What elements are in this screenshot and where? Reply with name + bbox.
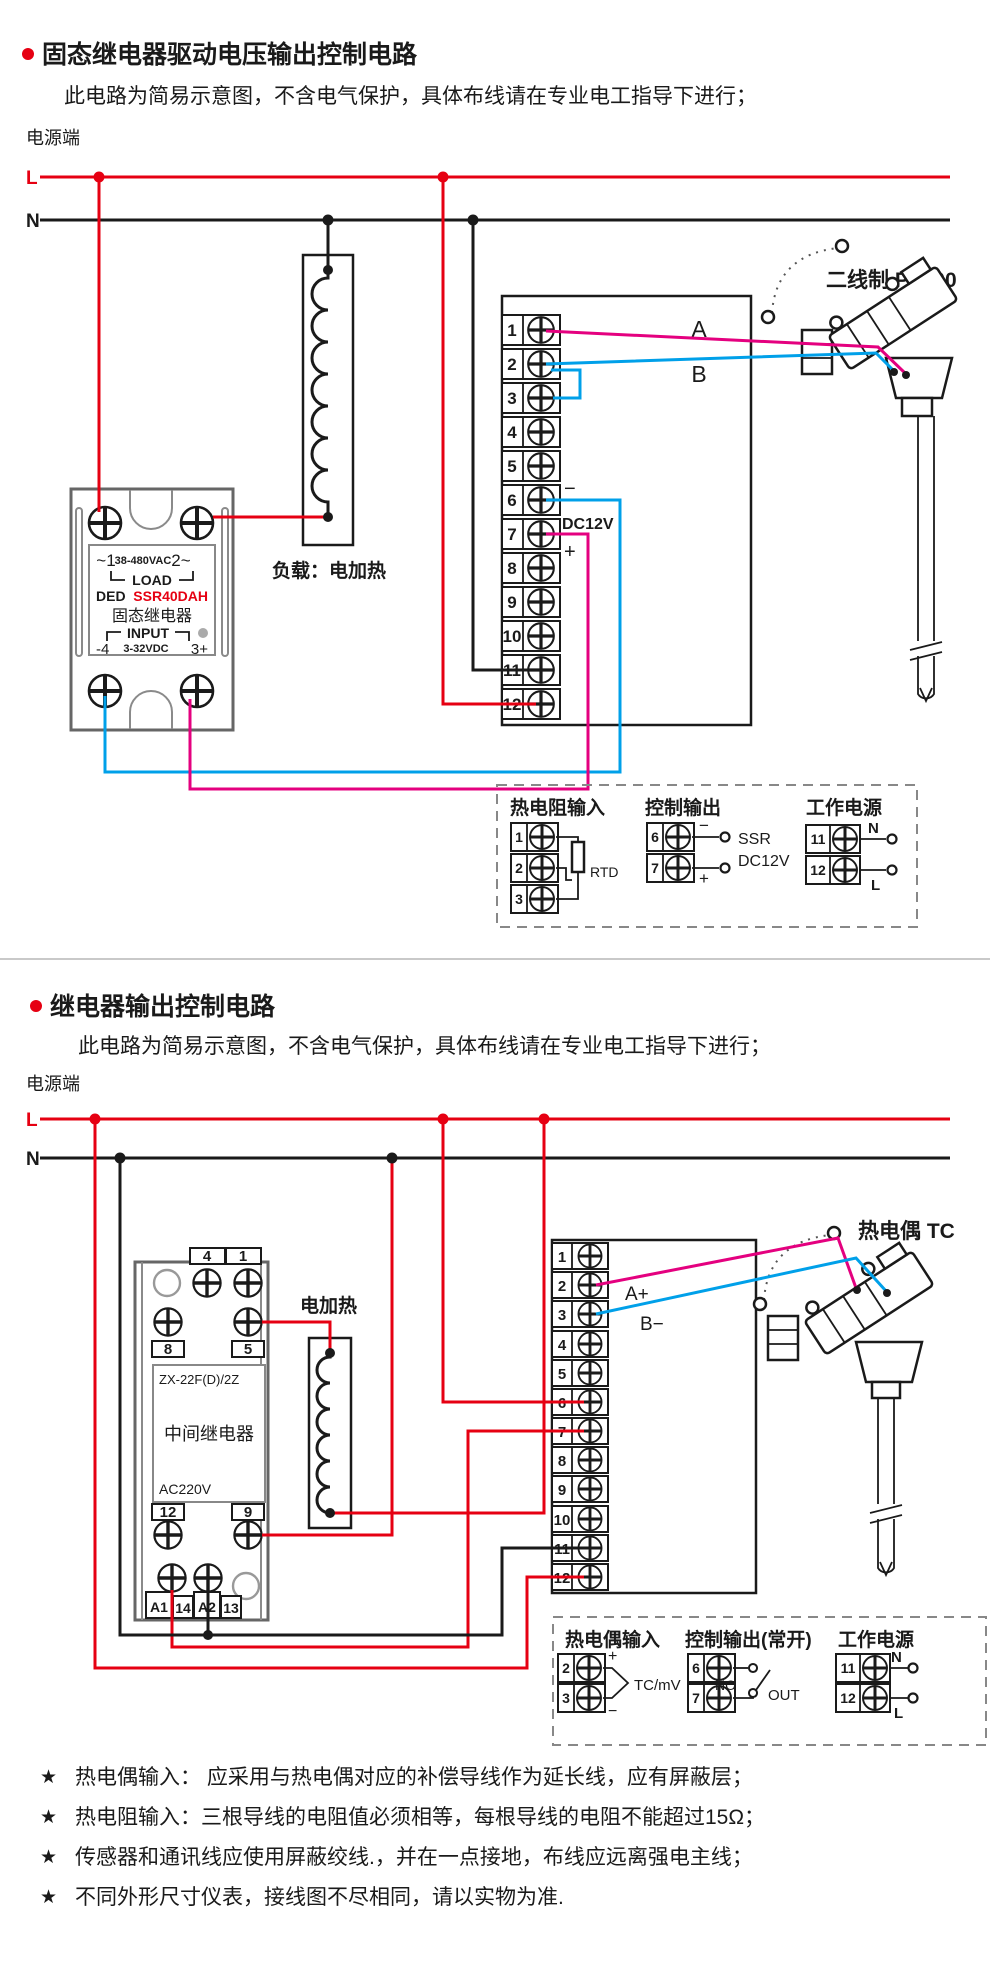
pt100-collar [902,398,932,416]
tc-collar [872,1382,900,1398]
heater-label: 电加热 [300,1294,357,1317]
pwr-n-label: N [891,1649,902,1666]
note-star-icon: ★ [40,1767,57,1788]
relay-cell-label: 13 [223,1600,239,1616]
diagram-canvas: 固态继电器驱动电压输出控制电路 此电路为简易示意图，不含电气保护，具体布线请在专… [0,0,990,1960]
note-star-icon: ★ [40,1887,57,1908]
terminal-number: 9 [507,593,516,612]
wire-b-minus-label: B− [640,1314,664,1335]
terminal-row-1: 1 [552,1243,608,1269]
output-pin-icon [721,864,730,873]
junction-dot [325,1508,335,1518]
terminal-screw-icon [578,1507,601,1530]
section2-bullet-icon [30,1000,42,1012]
relay-screw-icon [154,1308,181,1335]
legend-terminal-11: 11 [806,825,860,853]
terminal-number: 5 [558,1366,566,1383]
terminal-screw-icon [578,1244,601,1267]
pt100-arc-screw-icon [762,311,774,323]
terminal-number: 10 [554,1512,571,1529]
ssr-input-label: INPUT [127,625,169,641]
terminal-number: 3 [515,891,523,907]
dc-plus-label: + [564,541,576,563]
terminal-row-10: 10 [552,1506,608,1532]
instrument2: 1 2 3 4 5 6 7 8 9 10 11 12 A+ B− [552,1240,756,1593]
terminal-number: 2 [507,355,516,374]
terminal-screw-icon [833,827,857,851]
switch-pin-icon [749,1664,757,1672]
sensor-pin-dot [883,1289,891,1297]
terminal-screw-icon [666,825,690,849]
power-pin-icon [888,866,897,875]
out-minus-label: − [699,816,709,835]
terminal-number: 3 [562,1690,570,1706]
terminal-screw-icon [578,1448,601,1471]
wire-a-plus-label: A+ [625,1284,649,1305]
line-n-label: N [26,1149,40,1170]
terminal-screw-icon [666,856,690,880]
power-end-label: 电源端 [26,1074,80,1094]
switch-pin-icon [749,1689,757,1697]
junction-dot [323,215,334,226]
terminal-number: 8 [507,559,516,578]
wiring-diagram-page: 固态继电器驱动电压输出控制电路 此电路为简易示意图，不含电气保护，具体布线请在专… [0,0,990,1960]
tc-tip-v [880,1562,892,1575]
terminal-number: 4 [558,1337,567,1354]
relay-cell-label: 14 [175,1600,191,1616]
relay-screw-icon [158,1564,185,1591]
load-label: 负载：电加热 [272,559,386,582]
terminal-number: 2 [562,1660,570,1676]
legend-terminal-6: 6 [647,823,694,851]
relay-screw-icon [194,1564,221,1591]
terminal-screw-icon [833,858,857,882]
terminal-screw-icon [863,1686,887,1710]
legend-terminal-11: 11 [836,1654,890,1682]
power-end-label: 电源端 [26,128,80,148]
ssr-ac2-label: 2~ [171,551,190,570]
terminal-number: 2 [515,860,523,876]
pwr-n-label: N [868,820,879,837]
work-power-title: 工作电源 [806,796,882,819]
ssr-load-label: LOAD [132,572,172,588]
terminal-row-4: 4 [502,417,560,447]
terminal-screw-icon [528,419,554,445]
terminal-screw-icon [528,555,554,581]
line-l-label: L [26,168,38,189]
terminal-screw-icon [528,385,554,411]
section2-subtitle: 此电路为简易示意图，不含电气保护，具体布线请在专业电工指导下进行； [78,1035,771,1058]
control-output-no-title: 控制输出(常开) [685,1628,812,1651]
terminal-number: 5 [507,457,516,476]
relay-name-label: 中间继电器 [164,1424,254,1444]
terminal-number: 6 [692,1660,700,1676]
ssr-terminal3-screw-icon [181,675,213,707]
wire-tc-a [596,1238,856,1288]
terminal-screw-icon [530,887,554,911]
legend-box-2: 热电偶输入 2 3 + − TC/mV 控制输出(常开) 6 7 NO OUT … [553,1617,986,1745]
note-line-1: 热电偶输入： 应采用与热电偶对应的补偿导线作为延长线，应有屏蔽层； [75,1766,753,1789]
tc-arc-screw-icon [754,1298,766,1310]
tc-flange [856,1342,922,1382]
tc-label: 热电偶 TC [858,1219,955,1243]
terminal-number: 6 [507,491,516,510]
ssr-brand-label: DED [96,588,126,604]
legend-terminal-12: 12 [836,1684,890,1712]
terminal-row-9: 9 [552,1476,608,1502]
terminal-number: 6 [651,829,659,845]
terminal-number: 1 [515,829,523,845]
junction-dot [115,1153,126,1164]
terminal-number: 12 [810,862,826,878]
terminal-row-3: 3 [502,383,560,413]
junction-dot [323,265,333,275]
load-heater [303,255,353,545]
terminal-number: 1 [558,1249,566,1266]
power-pin-icon [909,1694,918,1703]
terminal-row-5: 5 [552,1360,608,1386]
terminal-number: 7 [651,860,659,876]
terminal-screw-icon [578,1332,601,1355]
terminal-number: 3 [558,1307,566,1324]
pt100-arc-screw-icon [836,240,848,252]
work-power-title: 工作电源 [838,1628,914,1651]
section1-bullet-icon [22,48,34,60]
legend-terminal-3: 3 [558,1684,605,1712]
sensor-pin-dot [902,371,910,379]
tc-bracket [603,1668,628,1698]
pwr-l-label: L [871,877,880,894]
note-star-icon: ★ [40,1807,57,1828]
legend-terminal-12: 12 [806,856,860,884]
relay-screw-icon [234,1308,261,1335]
junction-dot [438,1114,449,1125]
no-label: NO [715,1677,736,1693]
dc12v-label: DC12V [562,516,614,533]
relay-volt-label: AC220V [159,1481,212,1497]
line-n-label: N [26,211,40,232]
terminal-number: 3 [507,389,516,408]
out-label: OUT [768,1687,800,1704]
terminal-row-8: 8 [552,1447,608,1473]
relay-model-label: ZX-22F(D)/2Z [159,1372,239,1387]
section1-subtitle: 此电路为简易示意图，不含电气保护，具体布线请在专业电工指导下进行； [64,85,757,108]
legend-terminal-1: 1 [511,823,558,851]
note-line-4: 不同外形尺寸仪表，接线图不尽相同，请以实物为准. [75,1886,564,1909]
legend-terminal-2: 2 [511,854,558,882]
pt100-sensor: 二线制 PT100 [762,240,958,701]
out-plus-label: + [699,869,709,888]
note-star-icon: ★ [40,1847,57,1868]
ssr-dc4-label: -4 [96,641,109,658]
terminal-row-9: 9 [502,587,560,617]
junction-dot [94,172,105,183]
terminal-screw-icon [528,589,554,615]
relay-component: 4 1 8 5 ZX-22F(D)/2Z 中间继电器 AC220V 12 9 A… [135,1248,268,1620]
legend-terminal-7: 7 [647,854,694,882]
legend-box-1: 热电阻输入 1 2 3 RTD 控制输出 6 7 − + SSR DC12V 工… [497,785,917,927]
terminal-row-8: 8 [502,553,560,583]
control-output-title: 控制输出 [645,796,721,819]
section2-title: 继电器输出控制电路 [50,992,276,1021]
relay-cell-label: 9 [244,1504,252,1521]
terminal-number: 7 [507,525,516,544]
power-pin-icon [909,1664,918,1673]
wire-l-to-heater [330,1119,544,1513]
ssr-led-icon [198,628,208,638]
terminal-number: 11 [811,831,826,847]
wire-b-label: B [691,361,706,387]
relay-cell-label: 4 [203,1248,212,1265]
terminal-row-10: 10 [502,621,560,651]
ssr-terminal2-screw-icon [181,507,213,539]
terminal-number: 10 [503,627,522,646]
notes: ★ 热电偶输入： 应采用与热电偶对应的补偿导线作为延长线，应有屏蔽层； ★ 热电… [40,1766,765,1909]
terminal-number: 1 [507,321,516,340]
legend-terminal-2: 2 [558,1654,605,1682]
ssr-terminal1-screw-icon [89,507,121,539]
power-pin-icon [888,835,897,844]
section1-title: 固态继电器驱动电压输出控制电路 [42,40,418,69]
terminal-screw-icon [528,623,554,649]
terminal-number: 11 [841,1660,856,1676]
relay-cell-label: 1 [239,1248,247,1265]
tc-head [796,1239,933,1355]
junction-dot [438,172,449,183]
relay-cell-label: 5 [244,1341,252,1358]
terminal-screw-icon [863,1656,887,1680]
relay-cell-label: 8 [164,1341,172,1358]
legend-terminal-3: 3 [511,885,558,913]
note-line-2: 热电阻输入：三根导线的电阻值必须相等，每根导线的电阻不能超过15Ω； [75,1806,765,1829]
junction-dot [325,1348,335,1358]
tc-minus-label: − [608,1703,617,1720]
rtd-wiring [556,872,578,899]
note-line-3: 传感器和通讯线应使用屏蔽绞线.，并在一点接地，布线应远离强电主线； [75,1846,753,1869]
terminal-screw-icon [530,856,554,880]
terminal-screw-icon [578,1361,601,1384]
terminal-screw-icon [577,1656,601,1680]
relay-screw-icon [234,1269,261,1296]
terminal-number: 4 [507,423,517,442]
junction-dot [90,1114,101,1125]
ssr-dc3-label: 3+ [191,641,208,658]
relay-plain-hole-icon [154,1270,180,1296]
junction-dot [323,512,333,522]
terminal-screw-icon [577,1686,601,1710]
terminal-row-4: 4 [552,1331,608,1357]
terminal-screw-icon [578,1477,601,1500]
relay-screw-icon [193,1269,220,1296]
out-ssr-label: SSR [738,831,771,848]
relay-screw-icon [154,1521,181,1548]
rtd-input-title: 热电阻输入 [510,796,605,819]
junction-dot [468,215,479,226]
terminal-screw-icon [530,825,554,849]
ssr-model-label: SSR40DAH [133,588,208,604]
sensor-pin-dot [890,368,898,376]
rtd-resistor-icon [572,842,584,872]
pwr-l-label: L [894,1705,903,1722]
terminal-number: 12 [840,1690,856,1706]
relay-cell-label: 12 [160,1504,177,1521]
ssr-vdc-label: 3-32VDC [123,643,168,655]
junction-dot [387,1153,398,1164]
dc-minus-label: − [564,478,576,500]
ssr-component: ~1 38-480VAC 2~ LOAD DED SSR40DAH 固态继电器 … [71,489,233,730]
terminal-number: 2 [558,1278,566,1295]
ssr-name-label: 固态继电器 [112,607,192,625]
section1: 固态继电器驱动电压输出控制电路 此电路为简易示意图，不含电气保护，具体布线请在专… [22,40,958,927]
tcmv-label: TC/mV [634,1677,681,1694]
terminal-screw-icon [528,453,554,479]
out-dc12v-label: DC12V [738,853,790,870]
terminal-number: 7 [692,1690,700,1706]
tc-gland [768,1316,798,1360]
junction-dot [539,1114,550,1125]
line-l-label: L [26,1110,38,1131]
ssr-vac-label: 38-480VAC [115,555,172,567]
ssr-ac1-label: ~1 [96,551,115,570]
rtd-label: RTD [590,864,619,880]
terminal-row-5: 5 [502,451,560,481]
pt100-gland [802,330,832,374]
terminal-number: 8 [558,1453,566,1470]
pt100-tip-v [920,688,932,701]
sensor-pin-dot [853,1286,861,1294]
junction-dot [203,1630,213,1640]
tc-plus-label: + [608,1648,617,1665]
relay-cell-label: A1 [150,1599,168,1615]
output-pin-icon [721,833,730,842]
terminal-number: 9 [558,1482,566,1499]
section2: 继电器输出控制电路 此电路为简易示意图，不含电气保护，具体布线请在专业电工指导下… [26,992,986,1745]
relay-screw-icon [234,1521,261,1548]
